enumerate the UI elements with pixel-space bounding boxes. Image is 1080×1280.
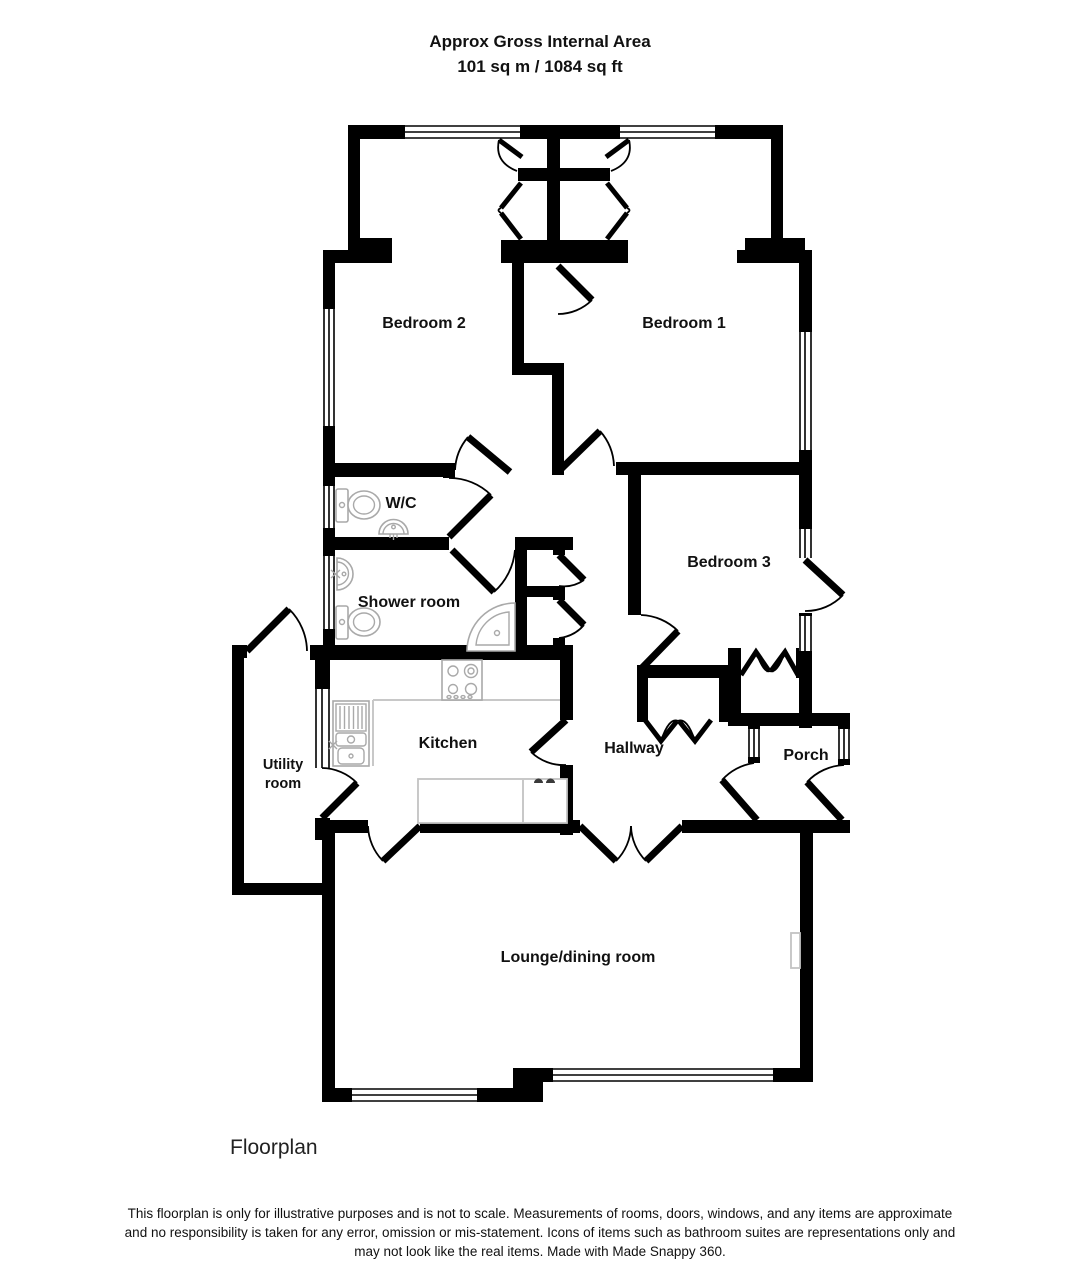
window-bedroom3-lower <box>799 616 812 651</box>
door-bedroom3-external <box>805 560 843 611</box>
door-cupboard-lower <box>559 600 584 638</box>
room-label-utility-line2: room <box>265 776 301 792</box>
window-top-left <box>405 125 520 139</box>
room-label-wc: W/C <box>385 495 417 512</box>
hob-icon <box>442 660 482 700</box>
window-bedroom2 <box>323 309 335 426</box>
room-label-utility-line1: Utility <box>263 757 303 773</box>
room-label-lounge: Lounge/dining room <box>501 949 656 966</box>
door-bedroom3 <box>640 615 678 670</box>
door-cupboard-upper <box>559 555 584 586</box>
window-bedroom1 <box>799 332 812 450</box>
toilet-icon <box>336 489 380 522</box>
window-porch-left <box>748 729 760 757</box>
window-wc <box>323 486 335 528</box>
door-kitchen-hallway <box>531 720 566 765</box>
door-hallway-porch <box>722 763 757 820</box>
bifold-doors-hall-closet <box>645 720 711 741</box>
door-wc <box>449 478 491 537</box>
wardrobe-doors <box>498 140 630 239</box>
radiator-icon <box>791 933 800 968</box>
floorplan-page: Approx Gross Internal Area 101 sq m / 10… <box>0 0 1080 1280</box>
door-corridor-hallway <box>560 431 614 470</box>
window-shower-room <box>323 556 335 629</box>
room-label-bedroom1: Bedroom 1 <box>642 315 726 332</box>
room-label-hallway: Hallway <box>604 740 664 757</box>
window-lounge-left <box>352 1088 477 1102</box>
window-porch-right <box>838 729 850 759</box>
room-label-bedroom3: Bedroom 3 <box>687 554 771 571</box>
room-labels: Bedroom 2 Bedroom 1 W/C Shower room Bedr… <box>263 315 829 966</box>
door-lounge-double <box>580 826 682 861</box>
room-label-bedroom2: Bedroom 2 <box>382 315 466 332</box>
room-label-kitchen: Kitchen <box>419 735 478 752</box>
bifold-doors-bedroom3-wardrobe <box>741 652 798 675</box>
door-utility-external <box>247 609 307 651</box>
kitchen-sink-icon <box>329 701 369 766</box>
window-lounge-right <box>553 1068 773 1082</box>
basin-icon <box>379 520 408 541</box>
door-bedroom1 <box>558 266 592 314</box>
disclaimer-text: This floorplan is only for illustrative … <box>123 1205 958 1262</box>
breakfast-bar <box>418 779 567 824</box>
window-top-right <box>620 125 715 139</box>
door-kitchen-lounge <box>368 826 420 861</box>
door-shower-room <box>452 550 515 592</box>
door-bedroom2 <box>455 437 510 472</box>
door-utility-kitchen <box>322 768 357 818</box>
window-bedroom3-upper <box>799 529 812 558</box>
window-utility <box>315 689 330 768</box>
room-label-porch: Porch <box>783 747 828 764</box>
shower-tray-icon <box>467 603 515 651</box>
floorplan-caption: Floorplan <box>230 1136 318 1160</box>
floorplan-canvas: Bedroom 2 Bedroom 1 W/C Shower room Bedr… <box>0 0 1080 1280</box>
disclaimer: This floorplan is only for illustrative … <box>0 1205 1080 1262</box>
front-door <box>807 765 844 820</box>
room-label-shower-room: Shower room <box>358 594 460 611</box>
